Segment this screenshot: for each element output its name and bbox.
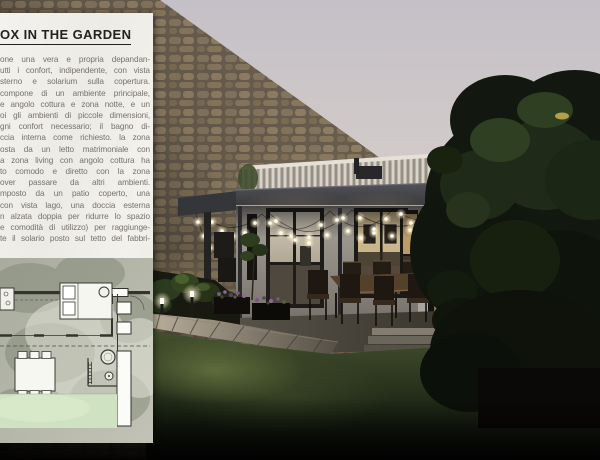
paragraph-line: one una vera e propria depandan- (0, 54, 150, 65)
floor-plan (0, 258, 153, 443)
plan-kitchen (0, 288, 14, 310)
presentation-board: OX IN THE GARDEN one una vera e propria … (0, 0, 600, 460)
plan-shrub (101, 350, 115, 364)
paragraph-line: oi gli ambienti di piccole dimensioni, (0, 110, 150, 121)
info-panel: OX IN THE GARDEN one una vera e propria … (0, 13, 153, 443)
plan-table (15, 352, 55, 398)
paragraph-line: e comodità di utilizzo) per raggiunge- (0, 222, 150, 233)
paragraph-line: over passare da altri ambienti. (0, 177, 150, 188)
plan-shower (105, 372, 113, 380)
terrace-plant (238, 164, 258, 192)
plan-plant (99, 287, 109, 297)
paragraph-line: osta da un letto matrimoniale con (0, 144, 150, 155)
panel-title: OX IN THE GARDEN (0, 27, 131, 45)
interior-chair (300, 246, 311, 266)
paragraph-line: utti i confort, indipendente, con vista (0, 65, 150, 76)
paragraph-line: compone di un ambiente principale, (0, 88, 150, 99)
paragraph-line: n alzata doppia per ridurre lo spazio (0, 211, 150, 222)
paragraph-line: sterno e solarium sulla copertura. (0, 76, 150, 87)
paragraph-line: te il solario posto sul tetto del fabbri… (0, 233, 150, 244)
paragraph-line: con vista lago, una doccia esterna (0, 200, 150, 211)
panel-paragraph: one una vera e propria depandan-utti i c… (0, 54, 150, 244)
paragraph-line: to comodo e diretto con la zona (0, 166, 150, 177)
paragraph-line: ccia interna come richiesto. la zona (0, 132, 150, 143)
paragraph-line: gni confort necessario; il bagno di- (0, 121, 150, 132)
distant-object (555, 113, 569, 120)
paragraph-line: a zona living con angolo cottura ha (0, 155, 150, 166)
paragraph-line: e angolo cottura e zona notte, e un (0, 99, 150, 110)
plan-lawn (0, 394, 117, 428)
paragraph-line: mposto da un patio coperto, una (0, 188, 150, 199)
